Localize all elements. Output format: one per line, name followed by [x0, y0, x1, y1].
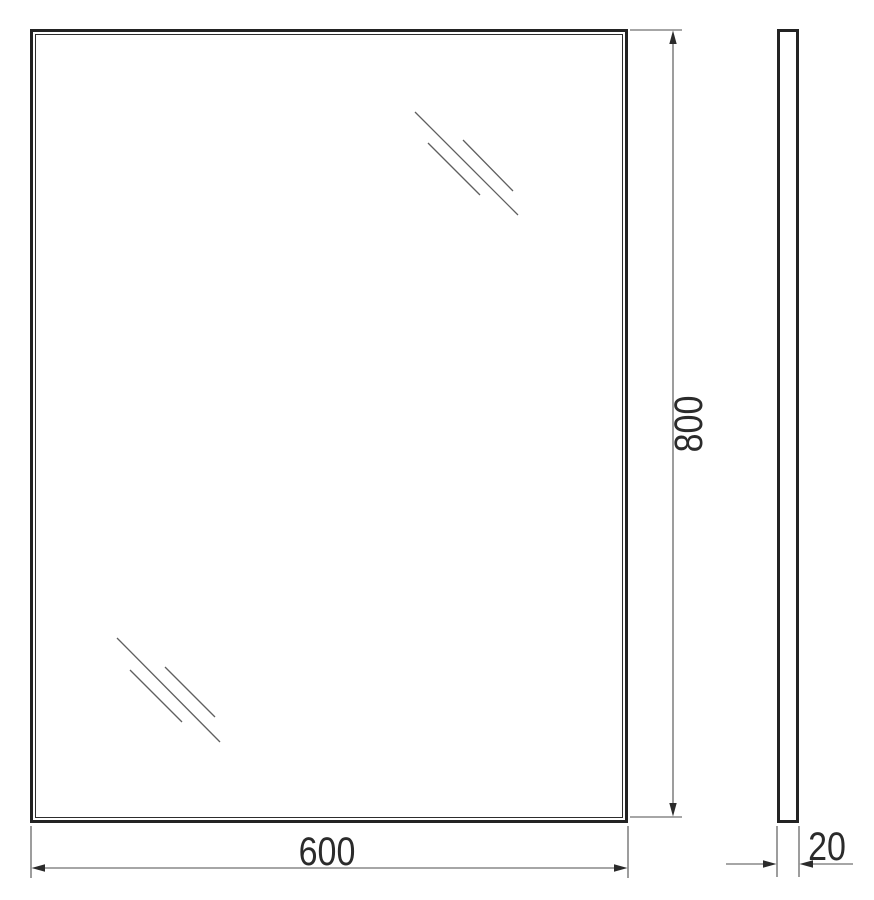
height-dimension-label: 800 [669, 396, 709, 453]
mirror-side-view [777, 29, 799, 823]
mirror-technical-drawing: 800 600 20 [0, 0, 874, 900]
mirror-front-view [30, 29, 628, 823]
width-dimension-label: 600 [299, 832, 356, 872]
arrow-left-icon [32, 864, 46, 871]
depth-dimension-label: 20 [808, 827, 846, 867]
arrow-up-icon [669, 31, 676, 45]
mirror-front-inner-edge [35, 34, 623, 818]
arrow-right-icon [614, 864, 628, 871]
arrow-right-icon [763, 860, 777, 867]
arrow-down-icon [669, 803, 676, 817]
